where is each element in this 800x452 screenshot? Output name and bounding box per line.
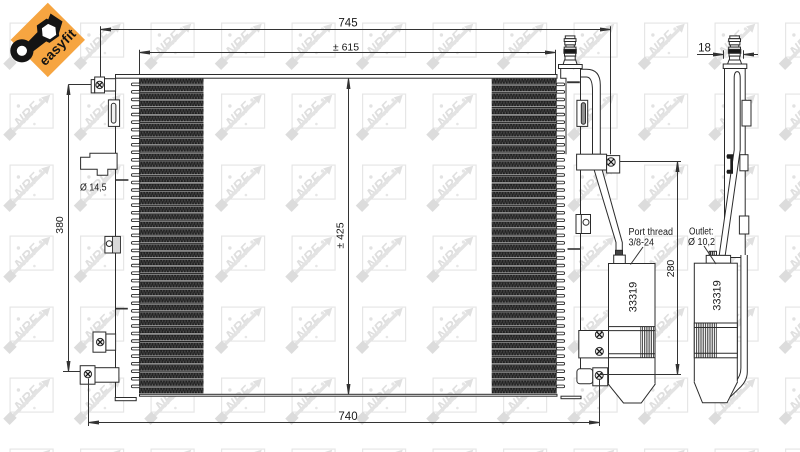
svg-text:380: 380: [54, 216, 66, 234]
svg-text:± 425: ± 425: [335, 222, 347, 248]
svg-text:Ø 14,5: Ø 14,5: [80, 183, 107, 194]
svg-text:Ø 10,2: Ø 10,2: [688, 237, 715, 248]
svg-text:745: 745: [338, 18, 357, 30]
svg-text:Outlet:: Outlet:: [689, 227, 714, 238]
svg-text:280: 280: [665, 260, 677, 278]
svg-text:33319: 33319: [712, 280, 724, 311]
svg-text:3/8-24: 3/8-24: [629, 237, 655, 248]
svg-text:33319: 33319: [628, 282, 640, 313]
svg-text:18: 18: [698, 42, 711, 54]
svg-text:740: 740: [338, 411, 357, 423]
svg-text:± 615: ± 615: [333, 41, 359, 53]
